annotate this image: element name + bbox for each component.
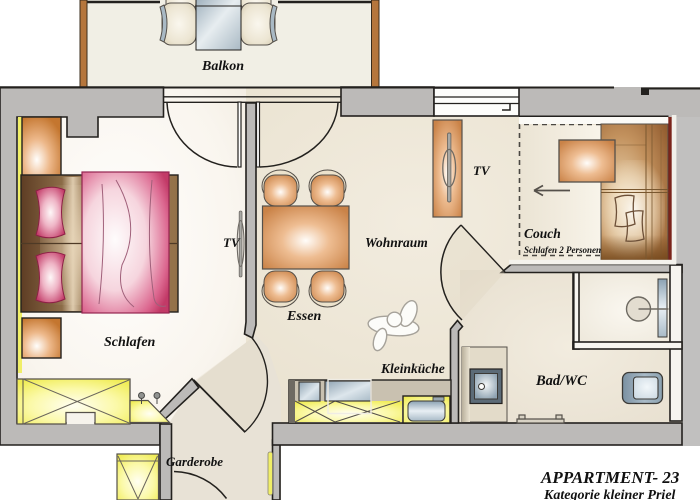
svg-text:APPARTMENT- 23: APPARTMENT- 23: [540, 468, 680, 487]
svg-text:Kategorie kleiner Priel: Kategorie kleiner Priel: [543, 488, 676, 500]
svg-text:Essen: Essen: [286, 309, 321, 324]
svg-text:TV: TV: [473, 163, 491, 178]
svg-text:Schlafen 2 Personen: Schlafen 2 Personen: [524, 245, 601, 255]
svg-text:Balkon: Balkon: [201, 59, 244, 74]
svg-text:Garderobe: Garderobe: [166, 454, 223, 469]
svg-text:Couch: Couch: [524, 226, 561, 241]
svg-text:Bad/WC: Bad/WC: [535, 373, 587, 389]
svg-text:Wohnraum: Wohnraum: [365, 235, 428, 250]
svg-text:Schlafen: Schlafen: [104, 335, 156, 350]
svg-text:TV: TV: [223, 235, 241, 250]
svg-text:Kleinküche: Kleinküche: [380, 361, 445, 376]
